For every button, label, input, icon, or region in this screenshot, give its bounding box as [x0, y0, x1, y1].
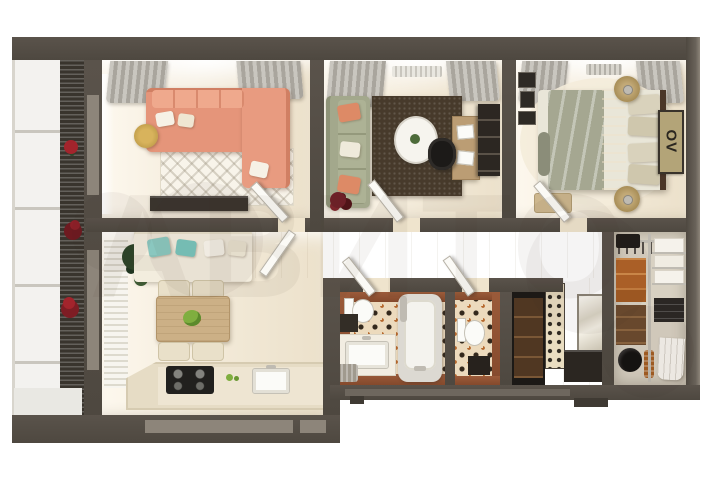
living-side-table — [134, 124, 158, 148]
kitchen-window-outer-1 — [145, 420, 293, 433]
wall-living-south-a — [86, 218, 278, 232]
balcony-railing — [60, 60, 84, 418]
white-pillow-mid — [339, 141, 360, 158]
closet-dark-clothes — [616, 234, 640, 248]
bed-pillow-4 — [627, 164, 660, 185]
wc-wall-right — [492, 292, 500, 385]
frame-2 — [520, 91, 535, 108]
closet-box-3 — [616, 288, 646, 302]
wall-bedroom-south — [587, 218, 686, 232]
frame-1 — [518, 72, 536, 88]
closet-shelf-2 — [652, 267, 686, 269]
wc-wall-bottom — [455, 376, 500, 385]
wall-lounge-bedroom — [502, 60, 516, 218]
wall-hall-south-b — [390, 278, 462, 292]
closet-towels — [657, 337, 685, 380]
teal-pillow-2 — [175, 239, 197, 258]
lounge-sofa — [326, 96, 370, 208]
shoe-cabinet — [564, 350, 602, 382]
office-chair — [428, 138, 456, 170]
exterior-wall-top — [12, 37, 700, 60]
wc-cabinet — [468, 356, 490, 375]
dining-chair-4 — [192, 342, 224, 361]
table-decor — [410, 134, 420, 144]
bottom-right-wall-face — [345, 389, 570, 396]
balcony-window-2 — [87, 250, 99, 370]
bed-duvet — [548, 90, 604, 190]
bed-pillow-2 — [628, 116, 661, 137]
kitchen-sink — [252, 368, 290, 394]
closet-dark-folded — [654, 298, 684, 322]
counter-fruit — [226, 374, 233, 381]
bed-pillow-3 — [628, 142, 661, 163]
bathroom-shelf — [338, 314, 358, 332]
desk-papers-1 — [456, 124, 474, 139]
closet-linen-3 — [654, 270, 684, 284]
wall-hall-south-c — [489, 278, 563, 292]
wall-bath-wc — [445, 292, 455, 385]
decorative-screen — [545, 283, 565, 369]
ov-poster: OV — [658, 110, 684, 174]
niche-cabinet — [514, 298, 543, 378]
lounge-curtain-right — [446, 61, 500, 101]
dining-table — [156, 296, 230, 342]
shower-column — [400, 296, 407, 322]
closet-black-bag — [618, 348, 642, 372]
living-media-console — [150, 196, 248, 211]
sofa-pillow-cream — [177, 113, 195, 128]
lounge-desk — [452, 116, 480, 180]
kitchen-sofa — [134, 230, 252, 282]
wall-wc-east — [500, 292, 512, 385]
frame-3 — [518, 111, 536, 125]
ov-poster-text: OV — [663, 130, 680, 152]
wall-closet-west — [602, 232, 614, 385]
exterior-wall-right — [686, 37, 700, 400]
closet-upright — [648, 234, 651, 382]
hallway-floor — [255, 232, 602, 278]
living-sofa — [146, 88, 290, 188]
white-pillow-2 — [227, 240, 247, 257]
closet-shelf-1 — [652, 252, 686, 254]
tub-faucet — [414, 366, 426, 371]
bed — [538, 90, 666, 190]
nightstand-top — [614, 76, 640, 102]
closet-drawer-unit — [616, 305, 646, 345]
closet-box-1 — [616, 258, 646, 273]
desk-papers-2 — [456, 150, 474, 166]
wall-lounge-south-b — [420, 218, 560, 232]
stove — [166, 366, 214, 394]
closet-linen-1 — [654, 238, 684, 253]
kitchen-window-outer-2 — [300, 420, 326, 433]
kitchen-counter — [126, 362, 328, 410]
table-flowers — [183, 310, 201, 326]
entrance-threshold — [574, 398, 608, 407]
wall-living-lounge — [310, 60, 324, 232]
balcony-flowers — [64, 140, 78, 154]
bed-rolled-blanket — [538, 132, 550, 176]
balcony-glazing — [12, 56, 65, 437]
sofa-back-cushions — [152, 90, 244, 108]
balcony-deck — [14, 388, 82, 415]
bedroom-ceiling-vent — [586, 64, 622, 75]
lounge-bookcase — [478, 104, 500, 176]
vanity-faucet — [362, 336, 371, 340]
lamp-bottom — [623, 195, 633, 205]
nightstand-bottom — [614, 186, 640, 212]
bath-threshold-tab — [350, 396, 364, 404]
sink-faucet — [266, 365, 276, 369]
bed-runner — [602, 90, 626, 190]
wc-toilet-bowl — [464, 320, 485, 346]
lounge-red-plant — [330, 192, 346, 208]
bedroom-gallery-frames — [518, 72, 536, 126]
wall-lounge-south-a — [324, 218, 393, 232]
lamp-top — [623, 85, 633, 95]
tub-basin — [404, 300, 436, 370]
closet-shelf-3 — [652, 283, 686, 285]
lounge-radiator — [392, 66, 442, 77]
entry-mirror — [577, 294, 604, 352]
teal-pillow-1 — [147, 236, 172, 258]
floor-plan-render: OV — [0, 0, 720, 480]
white-pillow-1 — [203, 239, 225, 257]
closet-box-2 — [616, 273, 646, 288]
balcony-window-1 — [87, 95, 99, 195]
dining-chair-3 — [158, 342, 190, 361]
